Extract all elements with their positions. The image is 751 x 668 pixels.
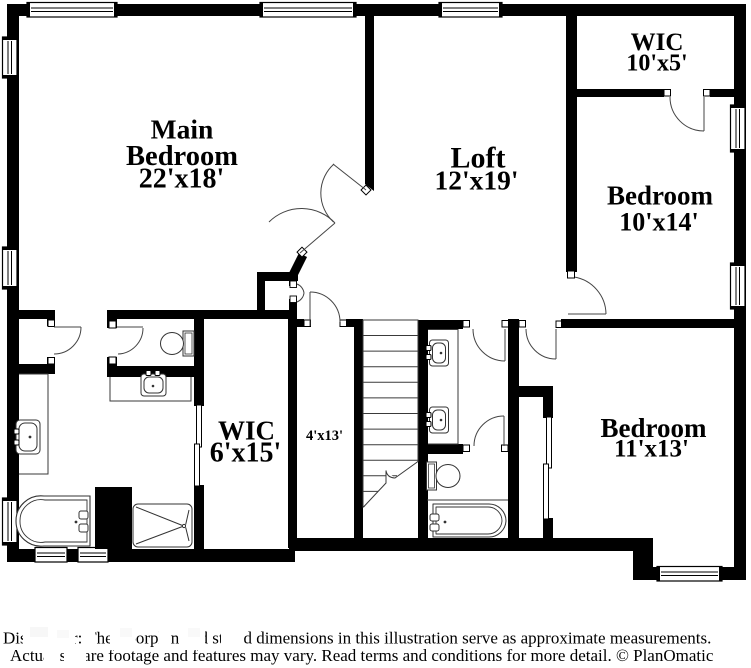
svg-text:4'x13': 4'x13' — [306, 428, 343, 444]
svg-text:22'x18': 22'x18' — [139, 164, 225, 195]
svg-text:11'x13': 11'x13' — [614, 436, 689, 463]
svg-text:6'x15': 6'x15' — [210, 438, 282, 469]
svg-text:12'x19': 12'x19' — [434, 165, 518, 196]
svg-text:Disclaimer: The floorplan and: Disclaimer: The floorplan and stated dim… — [3, 629, 711, 648]
svg-text:10'x5': 10'x5' — [626, 51, 687, 77]
svg-text:Main: Main — [151, 114, 214, 145]
svg-text:Bedroom: Bedroom — [607, 181, 714, 211]
svg-text:10'x14': 10'x14' — [619, 208, 698, 237]
